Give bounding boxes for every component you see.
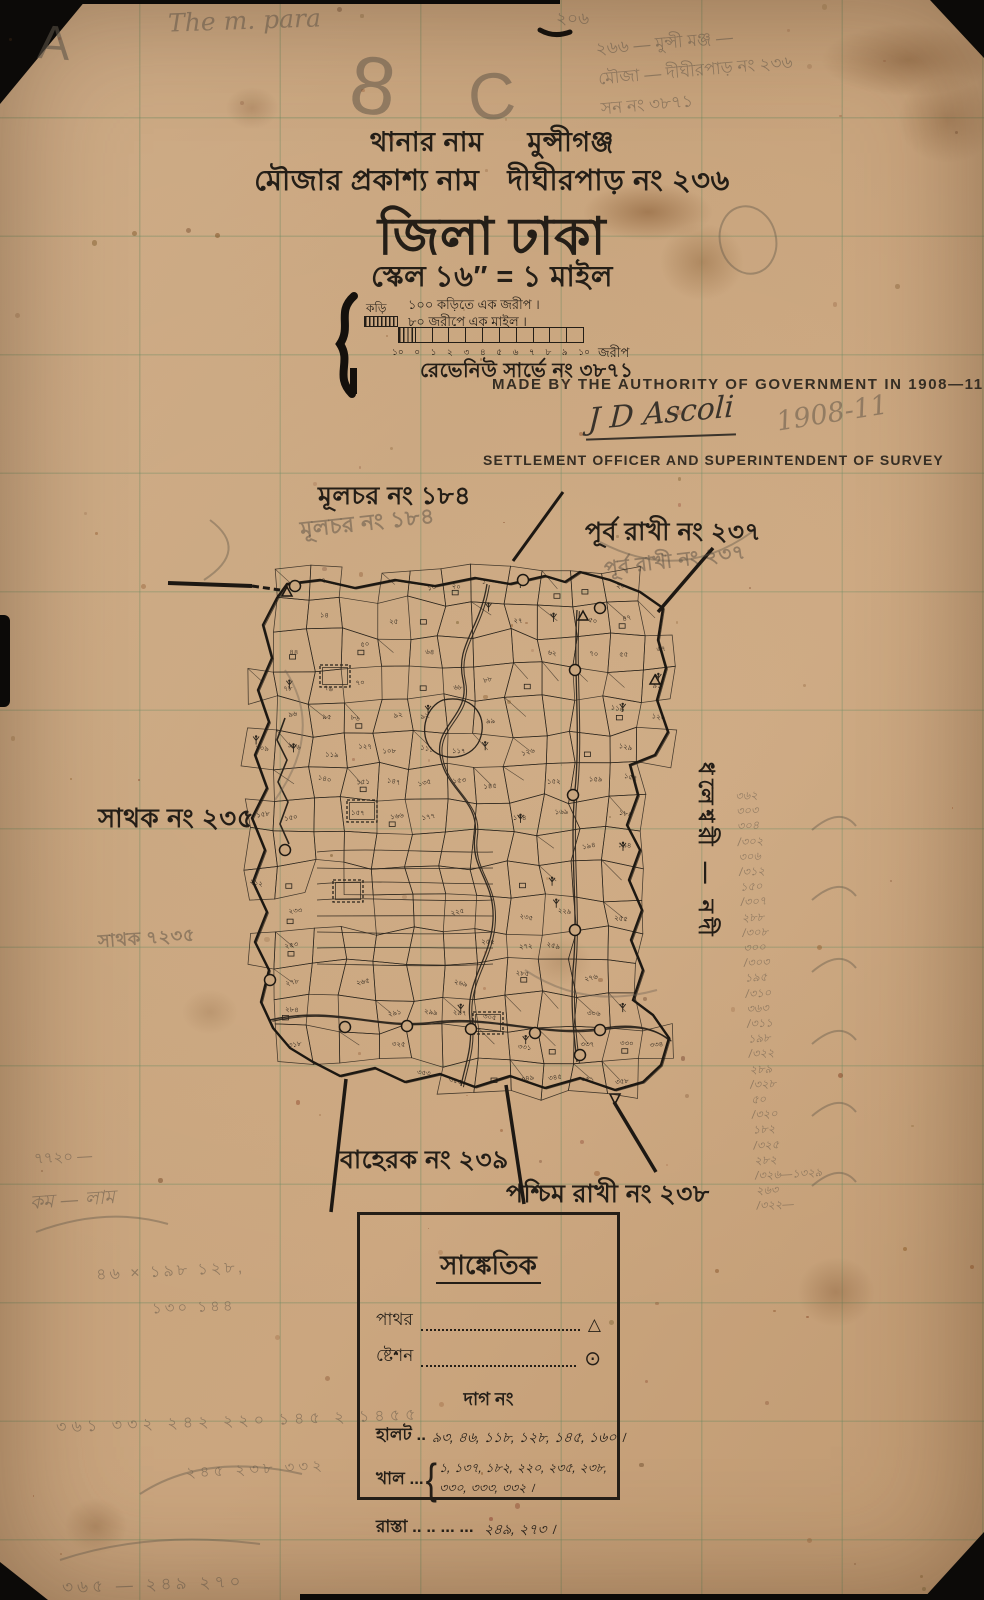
paper-speck (438, 1250, 443, 1255)
paper-speck (594, 1171, 599, 1176)
paper-speck (655, 1302, 658, 1305)
svg-text:২৫৯: ২৫৯ (546, 941, 561, 951)
svg-text:১৬৬: ১৬৬ (390, 812, 405, 821)
svg-text:২৩৩: ২৩৩ (288, 907, 303, 915)
paper-speck (484, 951, 486, 953)
paper-speck (456, 621, 459, 624)
svg-text:১৭৪: ১৭৪ (513, 815, 527, 822)
paper-speck (676, 410, 681, 415)
svg-text:৪৪: ৪৪ (289, 649, 298, 656)
svg-text:৩৫৮: ৩৫৮ (615, 1078, 630, 1087)
paper-speck (402, 895, 407, 900)
svg-text:২৮৪: ২৮৪ (285, 1006, 299, 1014)
paper-speck (883, 60, 885, 62)
svg-text:৮৮: ৮৮ (483, 676, 494, 685)
svg-text:৩০৫: ৩০৫ (483, 1014, 497, 1022)
leader-line-baherak (331, 1079, 346, 1212)
svg-text:২৫৫: ২৫৫ (614, 915, 628, 924)
leader-line-mulchar (513, 492, 563, 561)
svg-text:১২৭: ১২৭ (358, 743, 372, 750)
leader-line-west-dash (252, 586, 280, 590)
paper-speck (15, 313, 20, 318)
paper-speck (676, 621, 678, 623)
leader-line-paschim-1 (506, 1085, 524, 1204)
svg-text:২৭: ২৭ (513, 618, 523, 626)
paper-speck (838, 1073, 843, 1078)
map-overlay-svg: ১৭১৩২০১২০১৪২৫২৭৫০৪৭৪৪৫০৬৪৬২৭০৫৫৬৭৭৮৭৬৭০৬… (0, 0, 984, 1600)
svg-text:২৭৮: ২৭৮ (285, 978, 300, 988)
paper-speck (616, 535, 618, 537)
paper-speck (765, 1401, 769, 1405)
svg-text:১১৯: ১১৯ (325, 751, 340, 759)
paper-speck (322, 567, 326, 571)
svg-text:১০৮: ১০৮ (382, 748, 396, 755)
svg-text:৭৮: ৭৮ (283, 686, 293, 693)
cadastral-map: ১৭১৩২০১২০১৪২৫২৭৫০৪৭৪৪৫০৬৪৬২৭০৫৫৬৭৭৮৭৬৭০৬… (241, 564, 677, 1100)
svg-text:১৬৯: ১৬৯ (555, 809, 569, 816)
svg-text:১৫২: ১৫২ (547, 778, 561, 785)
paper-speck (643, 997, 647, 1001)
paper-speck (806, 1316, 809, 1319)
svg-text:১৪০: ১৪০ (317, 774, 332, 784)
paper-speck (390, 447, 393, 450)
svg-text:২৯১: ২৯১ (387, 1009, 402, 1019)
svg-text:৩৩০: ৩৩০ (620, 1040, 634, 1048)
paper-speck (895, 284, 900, 289)
svg-text:২৩৫: ২৩৫ (519, 913, 534, 923)
paper-speck (141, 584, 146, 589)
paper-speck (180, 935, 182, 937)
svg-text:১২৬: ১২৬ (521, 747, 536, 757)
svg-text:২৯৯: ২৯৯ (424, 1008, 439, 1017)
leader-line-west (168, 583, 252, 586)
paper-speck (296, 1100, 301, 1105)
paper-speck (515, 1503, 520, 1508)
svg-text:৭০: ৭০ (355, 680, 365, 688)
svg-text:২৭৬: ২৭৬ (584, 973, 599, 983)
svg-text:৩৩১: ৩৩১ (517, 1044, 531, 1052)
paper-speck (158, 1178, 163, 1183)
paper-speck (609, 1320, 614, 1325)
paper-speck (489, 1517, 493, 1521)
paper-speck (215, 233, 220, 238)
ink-bar-mark (350, 368, 357, 394)
svg-text:৩০৬: ৩০৬ (587, 1010, 601, 1018)
svg-text:৭০: ৭০ (589, 650, 599, 658)
paper-speck (787, 29, 789, 31)
paper-speck (41, 1170, 43, 1172)
leader-line-purba-rakhi (658, 548, 713, 612)
svg-text:২৫৩: ২৫৩ (284, 941, 299, 950)
paper-speck (359, 466, 361, 468)
svg-text:৬৪: ৬৪ (425, 649, 435, 657)
paper-speck (807, 64, 812, 69)
scanned-map-page: A The m. para 8 C ২০৬ ২৬৬ — মুন্সী মঞ্জ … (0, 0, 984, 1600)
svg-text:৩৩৭: ৩৩৭ (581, 1042, 595, 1049)
svg-text:৯৬: ৯৬ (288, 710, 299, 719)
paper-speck (539, 1160, 541, 1162)
svg-text:১৪: ১৪ (320, 612, 329, 619)
paper-speck (60, 1553, 62, 1555)
paper-speck (580, 1140, 584, 1144)
svg-text:২৫: ২৫ (389, 619, 398, 626)
paper-speck (822, 4, 827, 9)
paper-speck (352, 758, 355, 761)
paper-speck (240, 101, 244, 105)
svg-text:৩৪৫: ৩৪৫ (548, 1074, 562, 1083)
svg-text:১৪৫: ১৪৫ (483, 783, 497, 791)
pencil-flourishes (36, 200, 856, 1560)
svg-text:৩২৫: ৩২৫ (392, 1041, 406, 1049)
paper-speck (264, 937, 269, 942)
svg-text:২৬৫: ২৬৫ (356, 977, 371, 987)
svg-text:১৫৭: ১৫৭ (351, 810, 365, 818)
svg-text:১৫১: ১৫১ (356, 779, 370, 787)
paper-speck (358, 1052, 361, 1055)
svg-text:১৪৭: ১৪৭ (386, 777, 401, 787)
paper-speck (833, 302, 838, 307)
svg-text:২৯৭: ২৯৭ (453, 1009, 467, 1017)
paper-speck (463, 309, 465, 311)
paper-speck (483, 987, 486, 990)
svg-text:১১৭: ১১৭ (452, 748, 466, 755)
svg-text:১৫৯: ১৫৯ (589, 776, 603, 783)
svg-text:১৫০: ১৫০ (284, 814, 299, 823)
svg-text:১২৯: ১২৯ (618, 743, 633, 752)
svg-text:২৬৯: ২৬৯ (453, 979, 468, 989)
paper-speck (389, 137, 394, 142)
svg-text:৯৯: ৯৯ (486, 718, 496, 725)
svg-text:১৫৮: ১৫৮ (256, 810, 271, 819)
svg-text:৫০: ৫০ (360, 641, 370, 649)
svg-text:১৩৫: ১৩৫ (417, 779, 432, 789)
svg-text:৪৭: ৪৭ (622, 614, 632, 623)
paper-speck (33, 1495, 35, 1497)
svg-text:৫০: ৫০ (587, 617, 598, 626)
svg-text:৬৮: ৬৮ (453, 684, 463, 692)
paper-speck (807, 1538, 812, 1543)
paper-speck (470, 277, 472, 279)
leader-line-paschim-2 (614, 1102, 656, 1172)
svg-text:১৯৪: ১৯৪ (618, 842, 632, 850)
paper-speck (485, 169, 488, 172)
paper-speck (639, 1463, 644, 1468)
paper-speck (731, 1007, 736, 1012)
svg-text:৯৫: ৯৫ (322, 714, 331, 721)
paper-speck (685, 1094, 689, 1098)
paper-speck (749, 587, 751, 589)
svg-text:৬২: ৬২ (547, 649, 557, 657)
svg-text:১৭৭: ১৭৭ (421, 813, 436, 822)
paper-speck (678, 503, 682, 507)
paper-speck (360, 14, 363, 17)
svg-text:৩৩৪: ৩৩৪ (649, 1041, 663, 1049)
svg-text:৭৬: ৭৬ (323, 685, 334, 694)
paper-speck (564, 381, 568, 385)
svg-text:১৯৪: ১৯৪ (582, 842, 597, 851)
svg-text:৮৬: ৮৬ (350, 714, 361, 723)
svg-text:৯২: ৯২ (393, 711, 403, 720)
ink-smudge-top (540, 30, 570, 35)
svg-text:২২৯: ২২৯ (557, 908, 572, 916)
paper-speck (9, 38, 11, 40)
paper-speck (503, 522, 505, 524)
paper-speck (839, 115, 841, 117)
paper-speck (546, 877, 549, 880)
svg-text:২৭২: ২৭২ (519, 943, 533, 951)
paper-speck (439, 1402, 444, 1407)
svg-text:৫৫: ৫৫ (619, 651, 628, 658)
